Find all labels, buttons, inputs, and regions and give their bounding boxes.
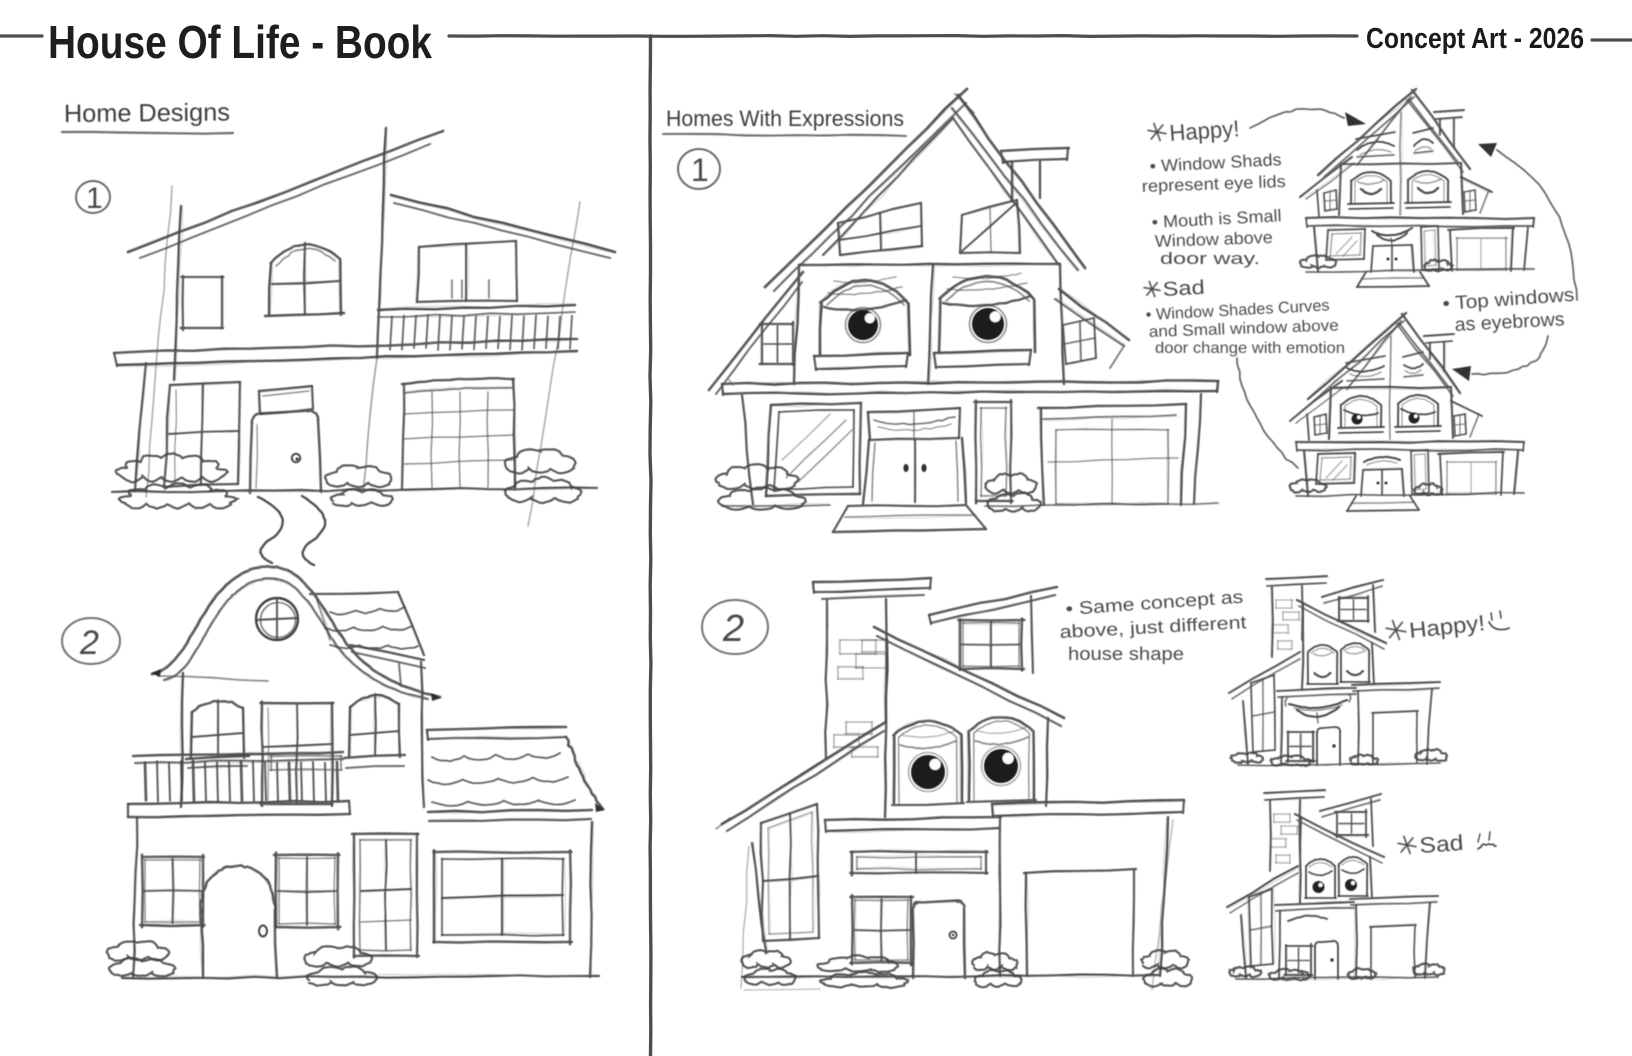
svg-text:house shape: house shape	[1068, 644, 1184, 664]
svg-text:2: 2	[722, 608, 744, 650]
svg-text:Happy!: Happy!	[1408, 610, 1486, 643]
svg-text:2: 2	[79, 624, 99, 662]
svg-text:1: 1	[86, 182, 103, 215]
svg-text:Homes With Expressions: Homes With Expressions	[666, 106, 904, 131]
svg-text:door way.: door way.	[1160, 249, 1260, 268]
svg-text:represent eye lids: represent eye lids	[1141, 172, 1286, 196]
svg-text:Home Designs: Home Designs	[64, 99, 230, 128]
svg-text:door change with emotion: door change with emotion	[1155, 340, 1345, 357]
svg-text:Concept Art - 2026: Concept Art - 2026	[1366, 23, 1584, 55]
svg-text:as eyebrows: as eyebrows	[1454, 309, 1565, 336]
svg-text:Sad: Sad	[1162, 277, 1205, 301]
svg-text:House Of Life - Book: House Of Life - Book	[48, 16, 432, 68]
svg-text:Sad: Sad	[1419, 830, 1465, 858]
svg-text:Window above: Window above	[1154, 228, 1273, 251]
svg-text:Happy!: Happy!	[1169, 115, 1241, 146]
svg-text:1: 1	[691, 152, 709, 188]
